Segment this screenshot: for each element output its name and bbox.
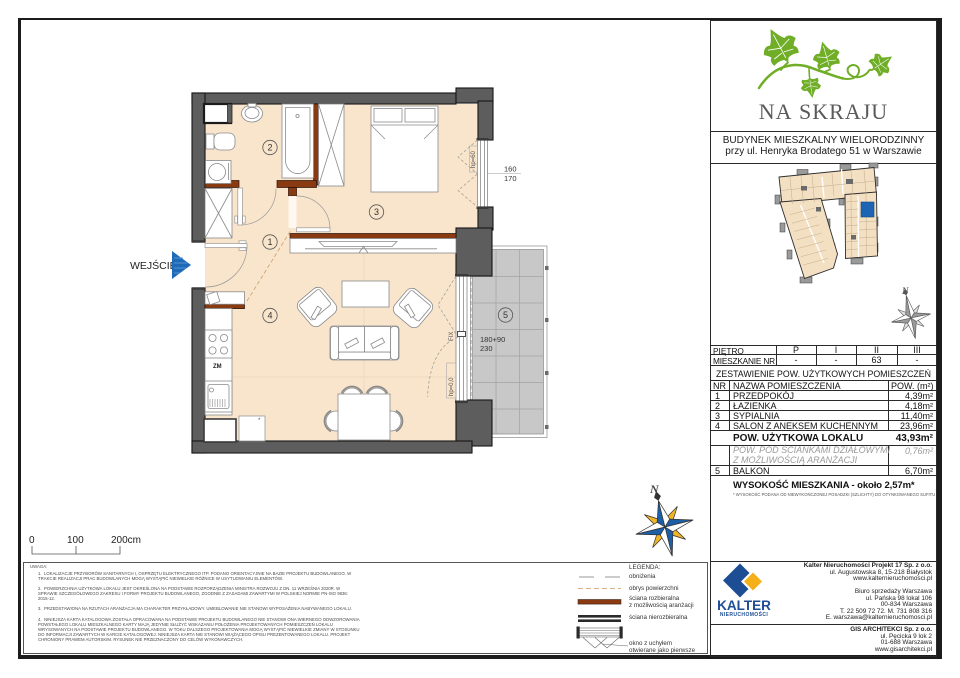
svg-text:hp=0,0: hp=0,0 xyxy=(449,377,455,396)
svg-text:160: 160 xyxy=(504,165,517,174)
svg-text:2: 2 xyxy=(267,143,272,153)
svg-text:3: 3 xyxy=(374,207,379,217)
svg-text:1: 1 xyxy=(267,237,272,247)
svg-text:N: N xyxy=(649,482,660,496)
svg-text:ZM: ZM xyxy=(213,364,222,370)
svg-text:N: N xyxy=(901,286,909,296)
svg-text:FIX: FIX xyxy=(449,332,455,341)
svg-text:170: 170 xyxy=(504,174,517,183)
svg-text:230: 230 xyxy=(480,344,493,353)
svg-text:5: 5 xyxy=(503,310,508,320)
svg-text:hp=60: hp=60 xyxy=(471,150,477,168)
svg-text:4: 4 xyxy=(267,311,272,321)
svg-text:180+90: 180+90 xyxy=(480,335,505,344)
